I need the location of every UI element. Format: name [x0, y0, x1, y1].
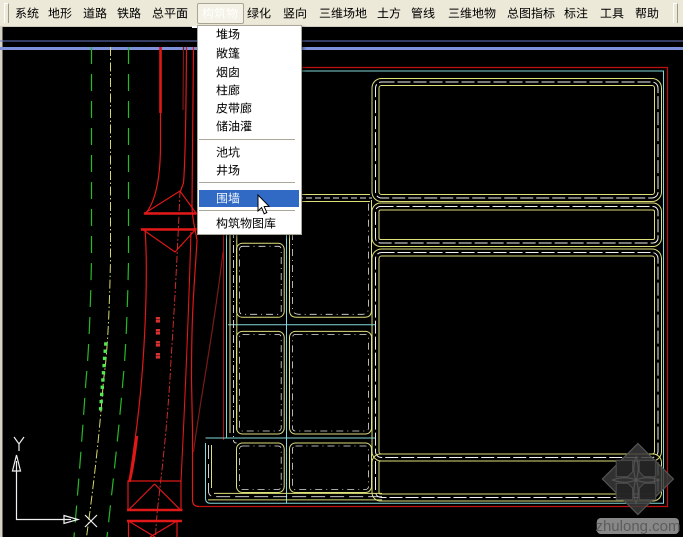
svg-text:zhulong.com: zhulong.com [595, 518, 680, 535]
